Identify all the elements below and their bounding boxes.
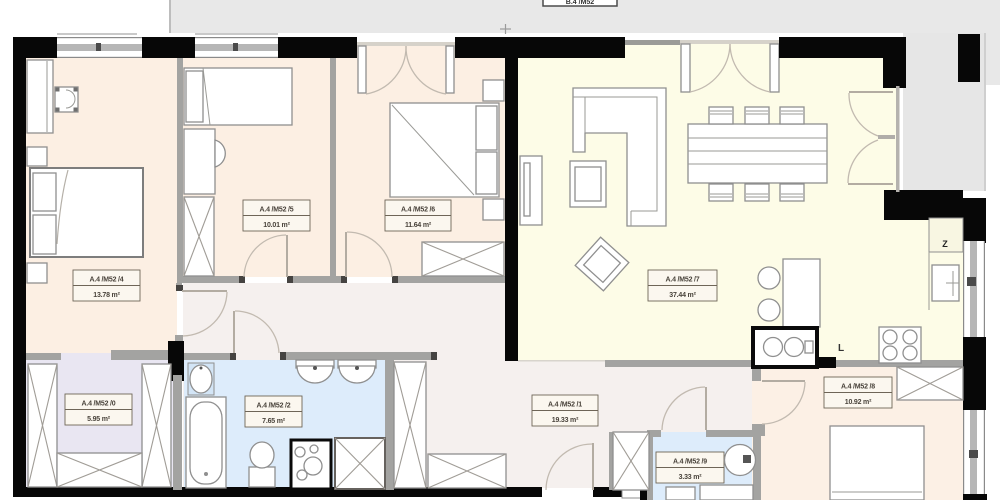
- svg-text:19.33 m²: 19.33 m²: [552, 417, 579, 424]
- svg-text:L: L: [838, 343, 844, 354]
- svg-text:10.92 m²: 10.92 m²: [845, 399, 872, 406]
- svg-text:37.44 m²: 37.44 m²: [669, 292, 696, 299]
- svg-text:5.95 m²: 5.95 m²: [87, 416, 111, 423]
- svg-text:Z: Z: [942, 239, 948, 249]
- svg-text:A.4 /M52 /0: A.4 /M52 /0: [82, 401, 116, 408]
- svg-text:A.4 /M52 /9: A.4 /M52 /9: [673, 459, 707, 466]
- svg-text:A.4 /M52 /5: A.4 /M52 /5: [260, 207, 294, 214]
- svg-text:A.4 /M52 /1: A.4 /M52 /1: [548, 402, 582, 409]
- svg-text:11.64 m²: 11.64 m²: [405, 222, 432, 229]
- svg-text:10.01 m²: 10.01 m²: [263, 222, 290, 229]
- svg-text:3.33 m²: 3.33 m²: [679, 474, 703, 481]
- svg-text:A.4 /M52 /6: A.4 /M52 /6: [401, 207, 435, 214]
- svg-text:A.4 /M52 /2: A.4 /M52 /2: [257, 403, 291, 410]
- svg-text:A.4 /M52 /8: A.4 /M52 /8: [841, 384, 875, 391]
- svg-text:13.78 m²: 13.78 m²: [93, 292, 120, 299]
- svg-text:A.4 /M52 /4: A.4 /M52 /4: [90, 277, 124, 284]
- svg-text:B.4 /M52: B.4 /M52: [566, 0, 595, 6]
- svg-text:A.4 /M52 /7: A.4 /M52 /7: [666, 277, 700, 284]
- svg-text:7.65 m²: 7.65 m²: [262, 418, 286, 425]
